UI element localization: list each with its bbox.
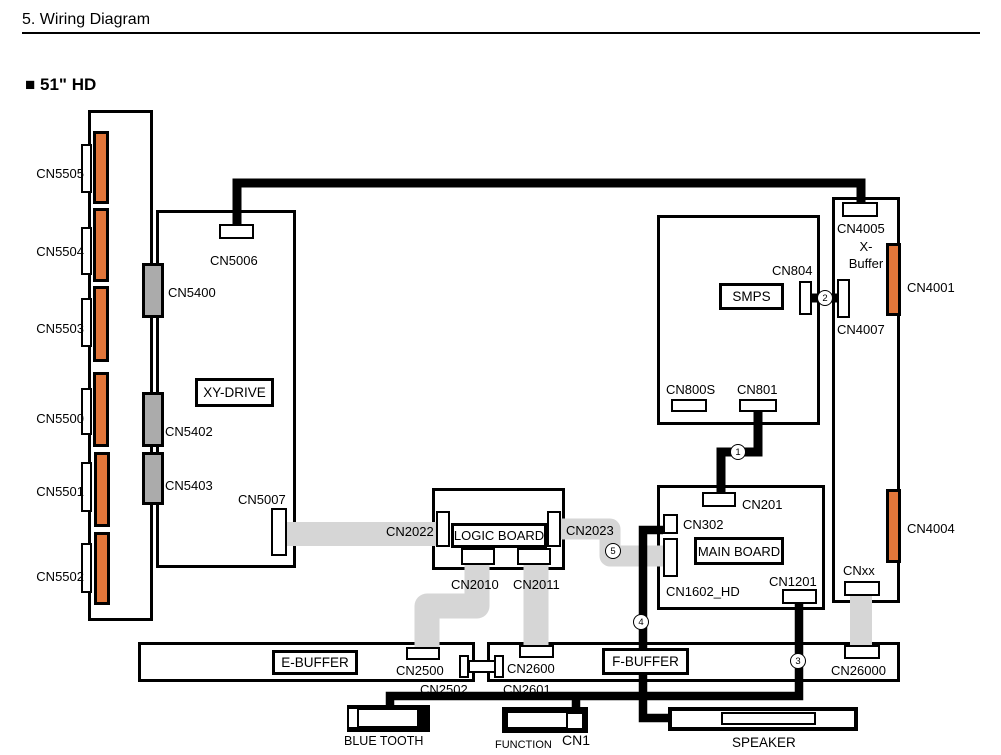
label-cn1201: CN1201 [769,574,817,589]
function-body [508,713,566,727]
connector-cn5402 [142,392,164,447]
connector-cn801 [739,399,777,412]
connector-cn5502 [94,532,110,605]
label-cn4007: CN4007 [837,322,885,337]
board-label-main: MAIN BOARD [694,537,784,565]
label-x-buffer: X-Buffer [832,238,900,272]
connector-cn5400 [142,263,164,318]
connector-cn5505 [93,131,109,204]
connector-cn2023 [547,511,561,547]
label-cn2022: CN2022 [386,524,434,539]
label-cn804: CN804 [772,263,812,278]
speaker-inner [721,712,816,725]
wire-marker-3: 3 [790,653,806,669]
label-cn4001: CN4001 [907,280,955,295]
label-cn5505: CN5505 [0,166,84,181]
bluetooth-body [359,710,417,726]
connector-cn4007 [837,279,850,318]
label-cn5500: CN5500 [0,411,84,426]
connector-cn26000 [844,645,880,659]
label-cn2601: CN2601 [503,682,551,697]
connector-cn804 [799,281,812,315]
wiring-diagram-page: 5. Wiring Diagram ■ 51" HD XY-DRIVE LOGI… [0,0,1001,755]
module-bluetooth [347,705,430,732]
connector-cn2600 [519,645,554,658]
connector-cn201 [702,492,736,507]
function-cn1-connector [568,714,582,728]
page-title: 5. Wiring Diagram [22,11,150,29]
connector-cn5007 [271,508,287,556]
label-cn2500: CN2500 [396,663,444,678]
label-cn5007: CN5007 [238,492,286,507]
label-cn5503: CN5503 [0,321,84,336]
title-underline [22,32,980,34]
wire-marker-5: 5 [605,543,621,559]
label-cn801: CN801 [737,382,777,397]
label-cn2600: CN2600 [507,661,555,676]
label-bluetooth: BLUE TOOTH [344,734,423,749]
label-x-buffer-line2: Buffer [849,256,883,271]
connector-cn5504 [93,208,109,282]
label-cn201: CN201 [742,497,782,512]
connector-cn5503 [93,286,109,362]
label-cn4005: CN4005 [837,221,885,236]
connector-cn1602-hd [663,538,678,577]
label-cn5402: CN5402 [165,424,213,439]
section-label: 51" HD [40,75,96,94]
connector-cn5006 [219,224,254,239]
connector-cn2502-cn2601-bridge [468,660,496,673]
board-label-f-buffer: F-BUFFER [602,648,689,675]
label-cn5504: CN5504 [0,244,84,259]
label-cn5400: CN5400 [168,285,216,300]
label-cn2502: CN2502 [420,682,468,697]
label-cn5502: CN5502 [0,569,84,584]
wire-marker-4: 4 [633,614,649,630]
connector-cn4004 [886,489,901,563]
section-bullet-icon: ■ [25,75,35,94]
connector-cn2011 [517,548,551,565]
bluetooth-connector [349,709,357,727]
label-cn1602-hd: CN1602_HD [666,584,740,599]
label-cn4004: CN4004 [907,521,955,536]
board-label-logic: LOGIC BOARD [451,523,547,548]
board-label-smps: SMPS [719,283,784,310]
connector-cn302 [663,514,678,534]
connector-cn800s [671,399,707,412]
board-label-e-buffer: E-BUFFER [272,650,358,675]
label-cn2010: CN2010 [451,577,499,592]
connector-cn5501 [94,452,110,527]
label-cnxx: CNxx [843,563,875,578]
connector-cnxx [844,581,880,596]
module-function [502,707,588,733]
label-cn26000: CN26000 [831,663,886,678]
board-label-xy-drive: XY-DRIVE [195,378,274,407]
connector-cn1201 [782,589,817,604]
label-cn5006: CN5006 [210,253,258,268]
ribbon-cn2010-cn2500 [427,558,477,652]
label-cn302: CN302 [683,517,723,532]
connector-cn2022 [436,511,450,547]
label-cn800s: CN800S [666,382,715,397]
label-cn5501: CN5501 [0,484,84,499]
label-cn1: CN1 [562,733,590,748]
connector-cn2601-bracket-right [494,655,504,678]
connector-cn2010 [461,548,495,565]
connector-cn4005 [842,202,878,217]
label-x-buffer-line1: X- [860,239,873,254]
connector-cn5403 [142,452,164,505]
label-speaker: SPEAKER [732,735,796,750]
connector-cn5500 [93,372,109,447]
label-cn2011: CN2011 [513,577,560,592]
label-cn5403: CN5403 [165,478,213,493]
label-cn2023: CN2023 [566,523,614,538]
wire-marker-1: 1 [730,444,746,460]
wire-marker-2: 2 [817,290,833,306]
section-heading: ■ 51" HD [25,75,96,95]
plug-cn5502 [81,543,92,593]
connector-cn2500 [406,647,440,660]
label-function: FUNCTION [495,738,552,753]
